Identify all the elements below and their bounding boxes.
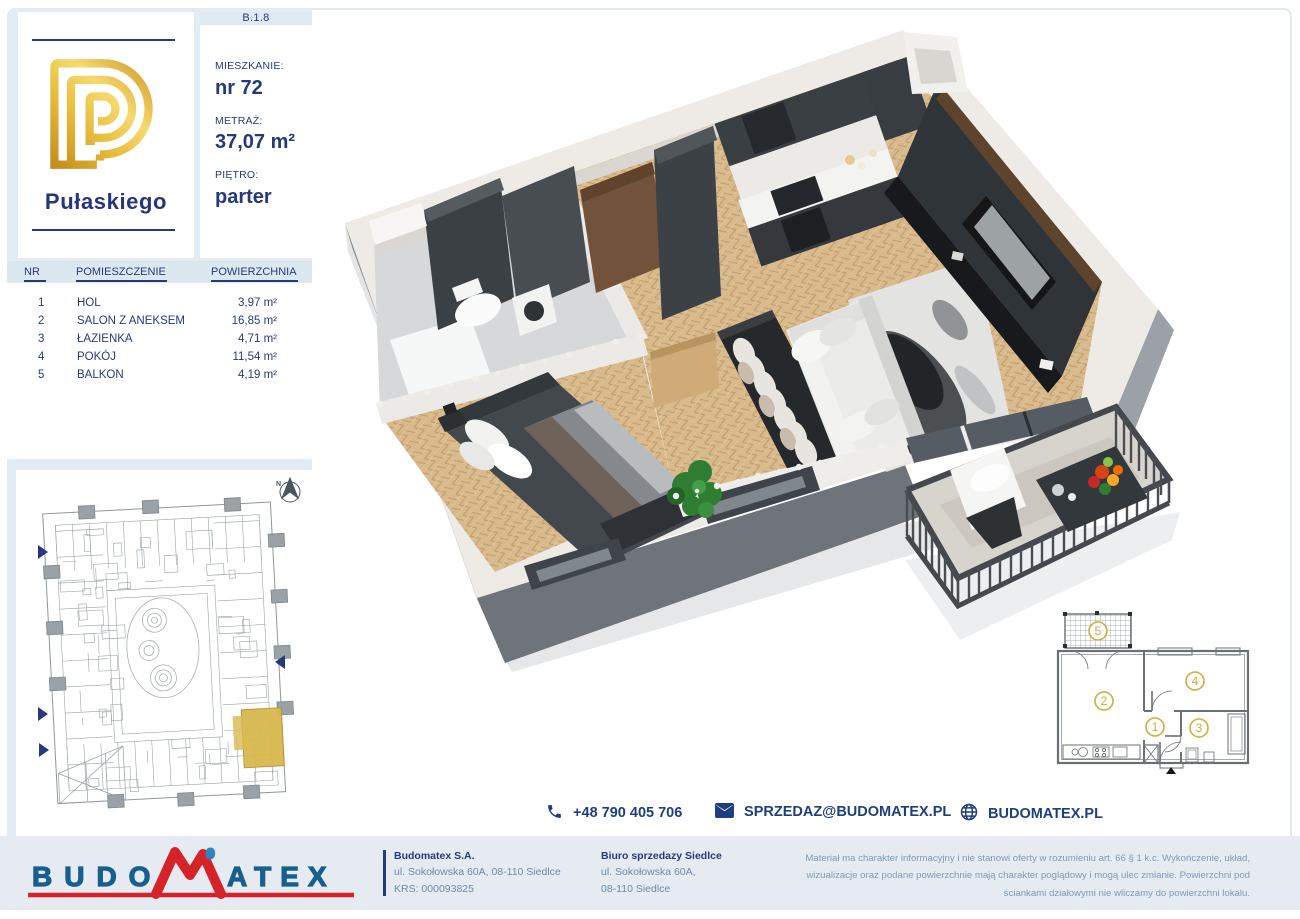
svg-text:1: 1: [1152, 720, 1159, 734]
svg-text:4: 4: [1192, 674, 1199, 688]
svg-text:3: 3: [1196, 721, 1203, 735]
svg-text:ATEX: ATEX: [227, 861, 336, 892]
svg-text:2: 2: [1101, 694, 1108, 708]
svg-text:5: 5: [1095, 624, 1102, 638]
svg-text:BUDO: BUDO: [32, 861, 162, 892]
svg-text:N: N: [276, 481, 281, 488]
